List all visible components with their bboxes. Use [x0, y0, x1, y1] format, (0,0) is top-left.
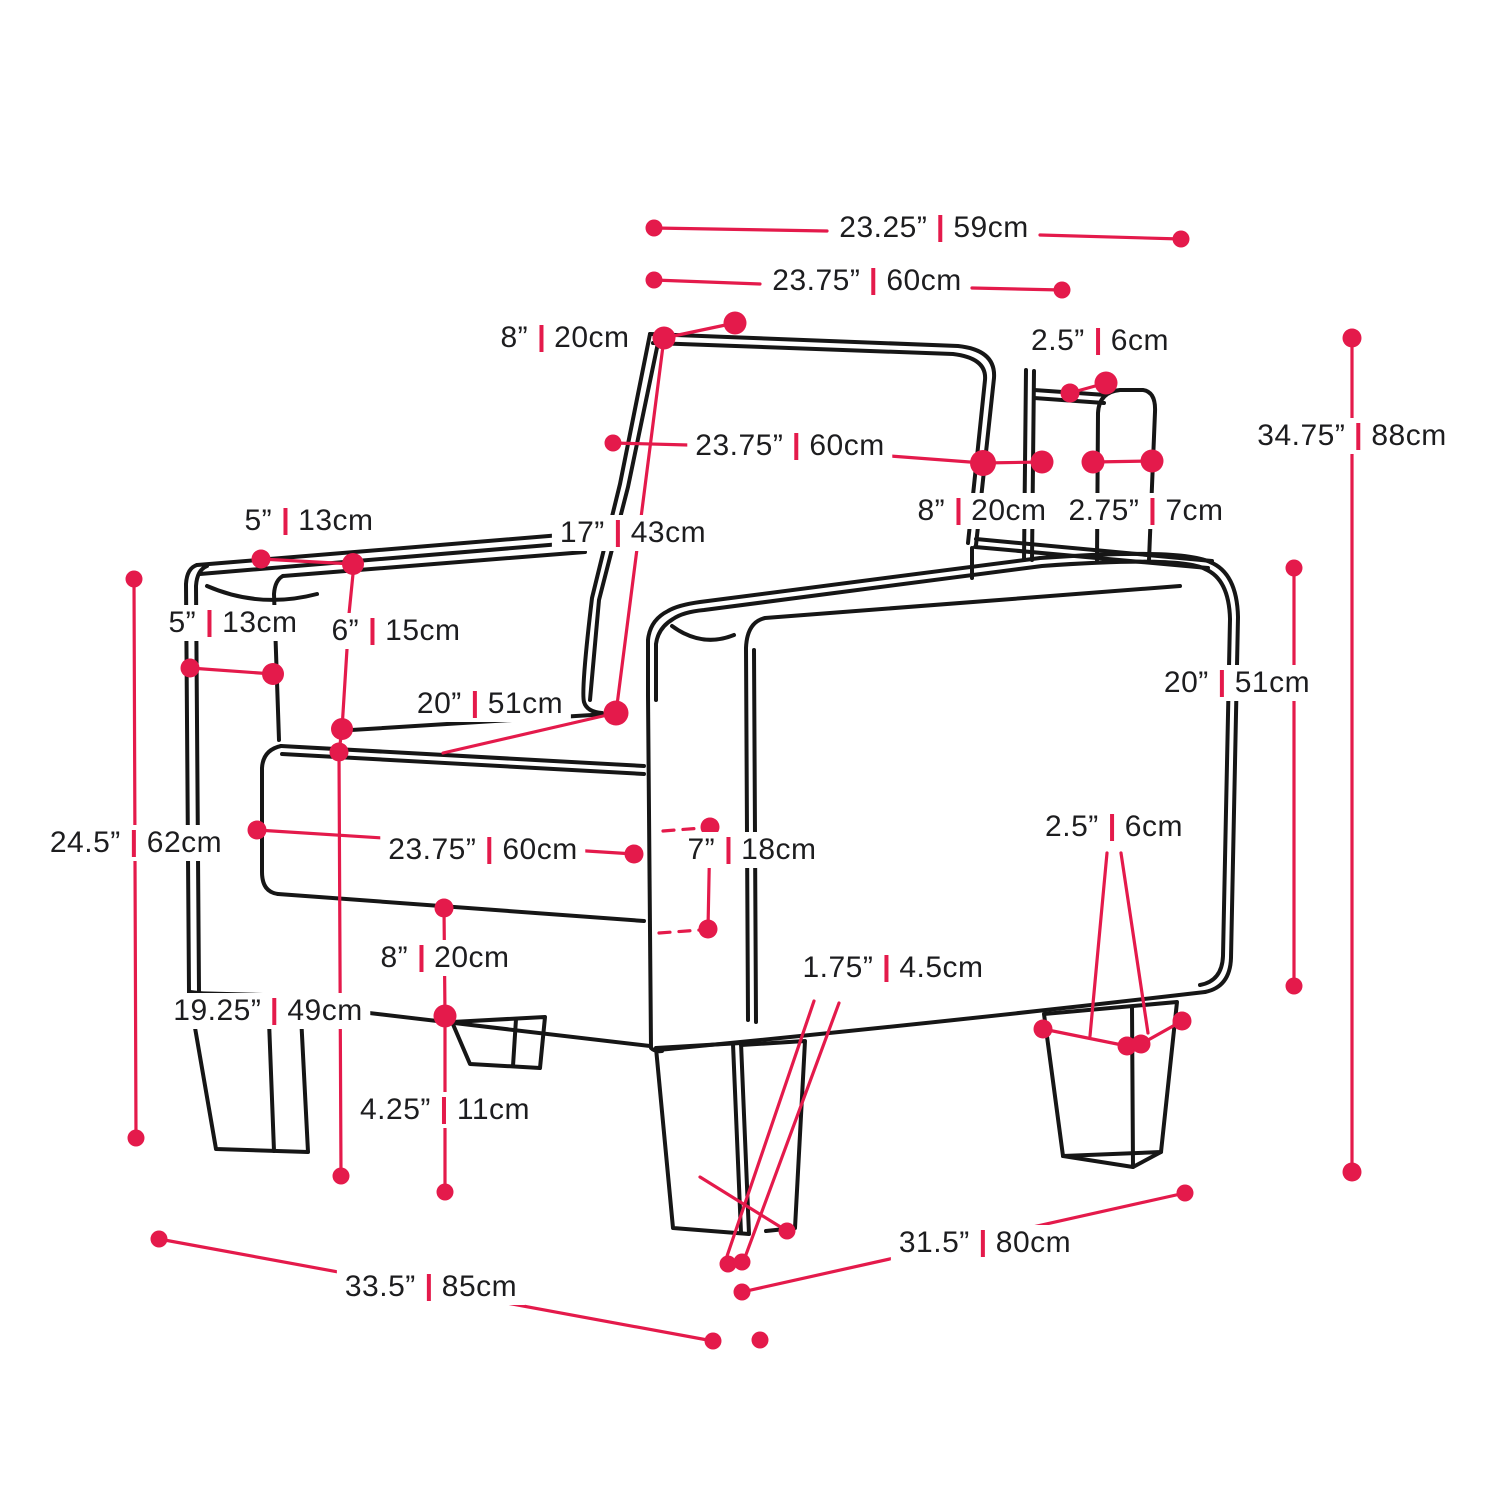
separator: [539, 325, 543, 352]
separator: [956, 498, 960, 525]
dim-value-cm: 6cm: [1111, 326, 1169, 356]
dim-value-cm: 7cm: [1165, 496, 1223, 526]
separator: [442, 1097, 446, 1124]
dim-value-in: 33.5”: [345, 1272, 416, 1302]
dim-value-cm: 4.5cm: [899, 953, 983, 983]
dim-label-seat-width: 23.75”60cm: [380, 832, 585, 868]
separator: [1220, 670, 1224, 697]
dim-line-arm-front-width: [190, 668, 273, 674]
dim-label-seat-depth: 20”51cm: [409, 686, 571, 722]
separator: [207, 610, 211, 637]
separator: [1096, 328, 1100, 355]
left-arm: [186, 533, 585, 992]
dim-value-in: 17”: [560, 518, 605, 548]
dimension-dots: [126, 220, 1362, 1350]
dim-line-cushion-side-dash2: [659, 930, 700, 933]
dim-label-overall-height: 34.75”88cm: [1249, 418, 1454, 454]
dim-label-arm-height: 24.5”62cm: [42, 825, 230, 861]
dim-value-cm: 20cm: [554, 323, 629, 353]
dim-label-back-top-left-depth: 8”20cm: [492, 320, 637, 356]
dim-value-cm: 51cm: [1235, 668, 1310, 698]
dim-line-leg-stub: [700, 1177, 787, 1231]
dim-value-in: 1.75”: [802, 953, 873, 983]
dim-line-seat-height: [339, 752, 341, 1176]
dim-label-rear-arm-top-gap: 2.5”6cm: [1023, 323, 1177, 359]
separator: [616, 520, 620, 547]
dim-line-cushion-side-dash1: [663, 828, 702, 831]
dim-value-cm: 43cm: [631, 518, 706, 548]
dim-value-cm: 60cm: [809, 431, 884, 461]
separator: [726, 837, 730, 864]
dim-label-back-top-inner-width: 23.75”60cm: [764, 263, 969, 299]
separator: [473, 691, 477, 718]
dim-label-arm-top-width: 5”13cm: [236, 503, 381, 539]
dimension-diagram: 23.25”59cm 23.75”60cm 8”20cm 2.5”6cm 23.…: [0, 0, 1500, 1500]
dim-value-in: 2.5”: [1031, 326, 1085, 356]
dim-value-cm: 60cm: [886, 266, 961, 296]
separator: [272, 998, 276, 1025]
dim-value-cm: 18cm: [741, 835, 816, 865]
dim-value-in: 23.75”: [388, 835, 476, 865]
mid-front-leg-edge: [733, 1044, 741, 1233]
dim-value-cm: 85cm: [442, 1272, 517, 1302]
dim-label-rear-leg-width: 2.5”6cm: [1037, 809, 1191, 845]
dim-value-in: 23.75”: [695, 431, 783, 461]
dim-value-cm: 62cm: [147, 828, 222, 858]
dim-value-cm: 60cm: [502, 835, 577, 865]
dim-value-in: 7”: [687, 835, 715, 865]
dim-value-cm: 59cm: [953, 213, 1028, 243]
dim-value-cm: 49cm: [287, 996, 362, 1026]
dimension-lines: [134, 228, 1352, 1341]
dim-line-rear-leg-pointers: [1043, 853, 1182, 1046]
legs: [189, 993, 1177, 1234]
separator: [283, 508, 287, 535]
rear-right-leg: [1044, 1002, 1177, 1156]
dim-value-cm: 15cm: [385, 616, 460, 646]
separator: [884, 955, 888, 982]
dim-value-in: 34.75”: [1257, 421, 1345, 451]
separator: [487, 837, 491, 864]
dim-value-in: 8”: [500, 323, 528, 353]
dim-label-cushion-to-base: 8”20cm: [372, 940, 517, 976]
dim-label-back-top-width: 23.25”59cm: [831, 210, 1036, 246]
dim-value-cm: 13cm: [298, 506, 373, 536]
dim-value-in: 5”: [244, 506, 272, 536]
dim-value-in: 4.25”: [360, 1095, 431, 1125]
dim-value-in: 6”: [331, 616, 359, 646]
dim-value-in: 31.5”: [899, 1228, 970, 1258]
dim-label-seat-cushion-side: 7”18cm: [679, 832, 824, 868]
separator: [1150, 498, 1154, 525]
dim-label-arm-front-width: 5”13cm: [160, 605, 305, 641]
dim-value-in: 19.25”: [173, 996, 261, 1026]
dim-value-cm: 20cm: [434, 943, 509, 973]
dim-label-leg-height: 4.25”11cm: [352, 1092, 538, 1128]
dim-value-cm: 51cm: [488, 689, 563, 719]
separator: [427, 1274, 431, 1301]
dim-value-in: 24.5”: [50, 828, 121, 858]
separator: [981, 1230, 985, 1257]
separator: [370, 618, 374, 645]
dim-value-in: 23.25”: [839, 213, 927, 243]
dim-label-backrest-width: 23.75”60cm: [687, 428, 892, 464]
dim-label-leg-bottom-width: 1.75”4.5cm: [794, 950, 991, 986]
chair-line-art: [0, 0, 1500, 1500]
dim-label-arm-above-seat: 6”15cm: [323, 613, 468, 649]
dim-value-cm: 6cm: [1125, 812, 1183, 842]
dim-value-in: 2.5”: [1045, 812, 1099, 842]
dim-value-in: 20”: [1164, 668, 1209, 698]
separator: [871, 268, 875, 295]
dim-value-cm: 20cm: [971, 496, 1046, 526]
rear-right-leg-edge: [1132, 1008, 1133, 1167]
mid-rear-leg: [741, 1041, 805, 1231]
chair-outline: [186, 334, 1238, 1234]
dim-label-back-to-rear-arm: 8”20cm: [909, 493, 1054, 529]
separator: [1110, 814, 1114, 841]
separator: [419, 945, 423, 972]
dim-value-in: 23.75”: [772, 266, 860, 296]
dim-label-rear-arm-width: 2.75”7cm: [1060, 493, 1231, 529]
dim-label-overall-depth: 31.5”80cm: [891, 1225, 1079, 1261]
dim-value-cm: 11cm: [457, 1095, 530, 1125]
dim-value-in: 5”: [168, 608, 196, 638]
seat-cushion: [262, 714, 644, 921]
dim-value-cm: 80cm: [996, 1228, 1071, 1258]
dim-value-cm: 13cm: [222, 608, 297, 638]
dim-value-in: 2.75”: [1068, 496, 1139, 526]
dim-label-overall-width: 33.5”85cm: [337, 1269, 525, 1305]
dim-label-side-panel-height: 20”51cm: [1156, 665, 1318, 701]
dim-value-in: 8”: [917, 496, 945, 526]
separator: [794, 433, 798, 460]
dim-value-cm: 88cm: [1371, 421, 1446, 451]
dim-label-seat-height: 19.25”49cm: [165, 993, 370, 1029]
dim-value-in: 20”: [417, 689, 462, 719]
rear-left-leg-edge: [513, 1019, 516, 1066]
separator: [132, 830, 136, 857]
dim-value-in: 8”: [380, 943, 408, 973]
separator: [1356, 423, 1360, 450]
separator: [938, 215, 942, 242]
dim-label-backrest-height: 17”43cm: [552, 515, 714, 551]
